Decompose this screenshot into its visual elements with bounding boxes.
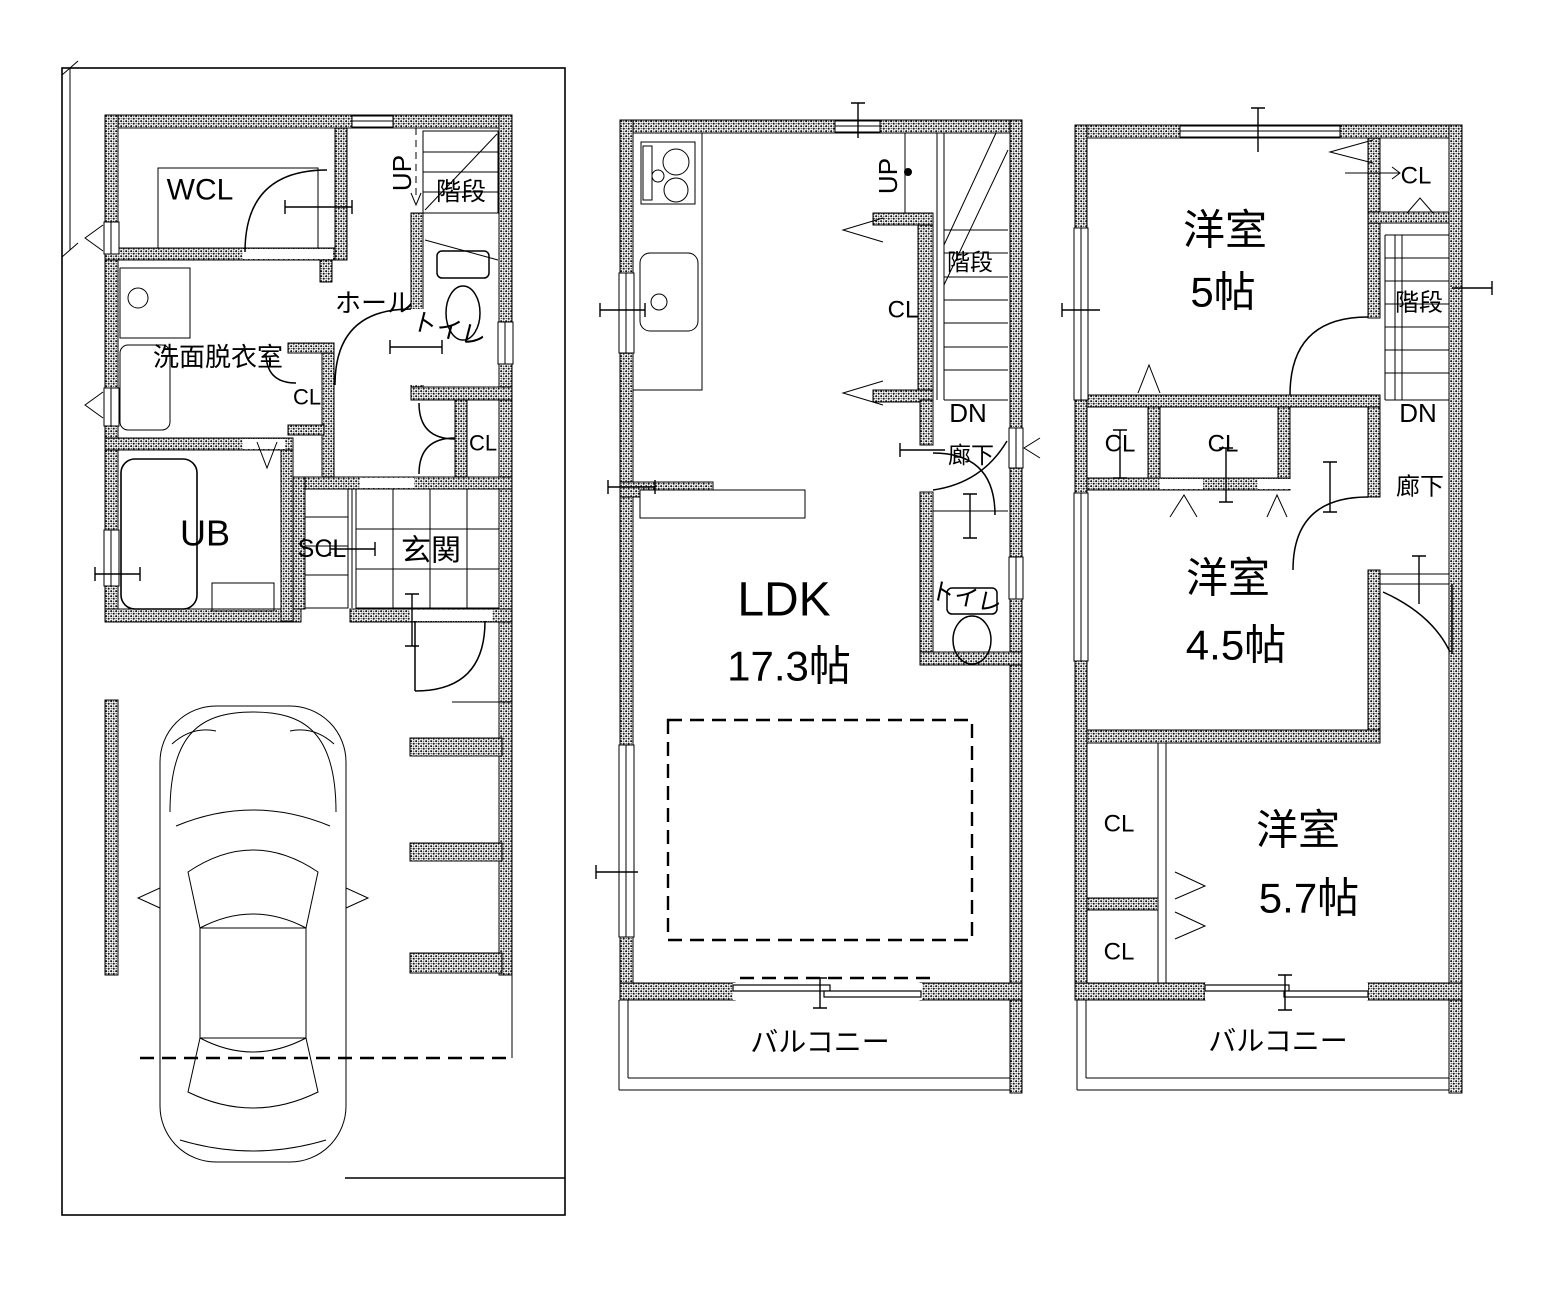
floor-3-label-room-youshitsu-45: 洋室 — [1186, 555, 1270, 602]
car-illustration — [138, 706, 368, 1162]
floor-2-closet-marks — [843, 218, 883, 405]
floor-3-label-closet-cl-top: CL — [1401, 163, 1432, 190]
floor-3-label-room-youshitsu-5-size: 5帖 — [1190, 269, 1255, 316]
door-arc — [1290, 317, 1368, 395]
window — [104, 222, 119, 254]
washing-machine — [120, 268, 190, 338]
window — [498, 322, 513, 364]
floor-3-label-room-rouka: 廊下 — [1396, 474, 1444, 501]
window — [104, 530, 119, 586]
window — [619, 273, 634, 353]
window-arrow-icon — [85, 392, 103, 418]
washer-drum — [128, 288, 148, 308]
floor-3-label-closet-cl-low-1: CL — [1104, 811, 1135, 838]
parking-walls — [105, 622, 512, 975]
floor-3-label-closet-cl-low-2: CL — [1104, 939, 1135, 966]
door-arc — [419, 403, 455, 439]
window — [1009, 557, 1023, 599]
burner — [663, 149, 689, 175]
floor-3-labels: 洋室5帖CL階段DNCLCL廊下洋室4.5帖CLCL洋室5.7帖バルコニー — [1104, 163, 1444, 1057]
window — [619, 745, 634, 937]
door-arc — [415, 621, 485, 691]
window — [1074, 228, 1088, 400]
floor-3: 洋室5帖CL階段DNCLCL廊下洋室4.5帖CLCL洋室5.7帖バルコニー — [1062, 108, 1492, 1093]
burner — [664, 178, 688, 202]
floor-1: WCL洗面脱衣室CLホールUP階段トイレCLUBSCL玄関 — [85, 115, 513, 702]
floor-2: UP階段CLDN廊下トイレLDK17.3帖バルコニー — [596, 103, 1040, 1093]
counter — [640, 490, 805, 518]
floor-1-genkan — [305, 489, 512, 702]
floor-1-label-room-ub: UB — [180, 513, 230, 554]
floor-2-label-balcony: バルコニー — [750, 1027, 889, 1058]
floor-1-label-room-hall: ホール — [335, 288, 413, 318]
door-arc — [1383, 592, 1450, 652]
floor-2-kitchen — [633, 133, 805, 518]
bath-step — [212, 583, 274, 611]
floor-1-label-room-senmen-datsuiishitsu: 洗面脱衣室 — [153, 342, 283, 372]
floor-3-label-room-youshitsu-45-size: 4.5帖 — [1186, 622, 1286, 669]
floor-1-ticks — [95, 200, 442, 646]
floor-2-label-stairs-up: UP — [873, 158, 903, 194]
floor-2-label-room-ldk-size: 17.3帖 — [727, 643, 851, 690]
floor-2-label-closet-cl: CL — [888, 297, 919, 324]
floor-2-label-room-ldk: LDK — [737, 574, 830, 627]
floor-3-label-room-youshitsu-57: 洋室 — [1256, 807, 1340, 854]
floor-3-label-room-youshitsu-5: 洋室 — [1183, 207, 1267, 254]
site-lot — [62, 61, 565, 1215]
dimension-bracket — [62, 61, 78, 257]
floor-1-label-stairs-up: UP — [387, 155, 417, 191]
kitchen-sink — [640, 253, 698, 331]
floor-3-label-closet-cl-mid-left: CL — [1105, 431, 1136, 458]
floor-2-label-stairs-dn: DN — [949, 398, 987, 428]
floor-3-sliding-door — [1205, 983, 1368, 1000]
window-arrow-icon — [1024, 438, 1040, 458]
floor-2-sliding-door — [733, 983, 922, 1000]
floor-3-label-stairs-dn: DN — [1399, 398, 1437, 428]
window-arrow-icon — [85, 225, 103, 251]
floor-1-label-room-wcl: WCL — [167, 174, 234, 207]
floor-2-label-room-toilet: トイレ — [928, 577, 1004, 618]
door-arc — [419, 438, 455, 474]
door-arc — [245, 170, 327, 252]
floor-1-label-room-genkan: 玄関 — [401, 535, 461, 568]
floor-3-label-room-youshitsu-57-size: 5.7帖 — [1259, 875, 1359, 922]
window — [352, 116, 393, 127]
floor-1-label-closet-scl: SCL — [298, 535, 347, 563]
living-area-dashed-rect — [668, 720, 972, 940]
floor-2-label-room-rouka: 廊下 — [948, 442, 994, 468]
burner — [652, 170, 664, 182]
floor-1-label-closet-cl-washroom: CL — [293, 385, 321, 410]
floor-3-label-closet-cl-mid-center: CL — [1208, 431, 1239, 458]
floorplan-page: WCL洗面脱衣室CLホールUP階段トイレCLUBSCL玄関 — [0, 0, 1545, 1293]
floor-2-label-room-kaidan: 階段 — [947, 249, 993, 275]
floor-1-label-room-kaidan: 階段 — [436, 178, 486, 206]
floor-1-label-closet-cl-hall: CL — [469, 431, 497, 456]
floor-2-labels: UP階段CLDN廊下トイレLDK17.3帖バルコニー — [727, 158, 1004, 1058]
floor-2-windows — [619, 121, 1040, 937]
window — [1009, 428, 1023, 468]
window — [1180, 126, 1340, 137]
window — [1074, 493, 1088, 661]
floor-3-label-room-kaidan: 階段 — [1395, 290, 1443, 317]
faucet — [651, 294, 667, 310]
lot-boundary — [62, 68, 565, 1215]
floorplan-canvas: WCL洗面脱衣室CLホールUP階段トイレCLUBSCL玄関 — [0, 0, 1545, 1293]
floor-3-label-balcony: バルコニー — [1208, 1026, 1347, 1057]
window — [104, 388, 119, 426]
